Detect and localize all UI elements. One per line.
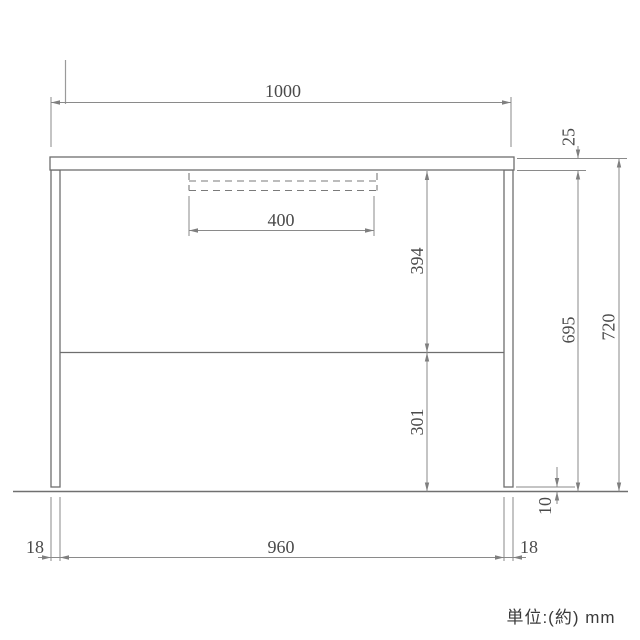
dim-apron-to-shelf-label: 394 xyxy=(407,248,427,275)
arrowhead-down xyxy=(555,478,559,487)
arrowhead-right xyxy=(495,555,504,559)
dim-bottom-widths: 18 960 18 xyxy=(26,497,538,561)
dim-top-thickness: 25 xyxy=(517,128,627,171)
dim-under-top-height: 695 xyxy=(559,171,581,492)
dim-inner-width-label: 960 xyxy=(268,537,295,557)
dim-top-width: 1000 xyxy=(51,81,511,147)
arrowhead-down xyxy=(576,150,580,159)
arrowhead-left xyxy=(189,228,198,232)
dim-overall-height-label: 720 xyxy=(599,314,619,341)
technical-drawing-canvas: 1000 400 25 695 720 394 xyxy=(0,0,640,640)
dim-drawer-width-label: 400 xyxy=(268,210,295,230)
arrowhead-up xyxy=(425,171,429,180)
dim-top-thickness-label: 25 xyxy=(559,128,579,146)
drawer-hidden-outline xyxy=(189,173,377,191)
dim-left-leg-label: 18 xyxy=(26,537,44,557)
dim-top-width-label: 1000 xyxy=(265,81,301,101)
desk-top xyxy=(50,157,514,170)
dim-drawer-width: 400 xyxy=(189,196,374,236)
right-leg xyxy=(504,170,513,487)
arrowhead-down xyxy=(576,483,580,492)
arrowhead-down xyxy=(425,483,429,492)
arrowhead-up xyxy=(576,171,580,180)
dim-shelf-to-floor: 301 xyxy=(407,353,429,492)
arrowhead-left xyxy=(60,555,69,559)
unit-note: 単位:(約) mm xyxy=(506,608,615,627)
dim-adjuster-height-label: 10 xyxy=(535,497,555,515)
arrowhead-down xyxy=(617,483,621,492)
arrowhead-down xyxy=(425,344,429,353)
dim-under-top-height-label: 695 xyxy=(559,317,579,344)
arrowhead-up xyxy=(425,353,429,362)
left-leg xyxy=(51,170,60,487)
dim-shelf-to-floor-label: 301 xyxy=(407,409,427,436)
arrowhead-up xyxy=(617,159,621,168)
arrowhead-right xyxy=(365,228,374,232)
dim-right-leg-label: 18 xyxy=(520,537,538,557)
dim-overall-height: 720 xyxy=(599,159,622,492)
arrowhead-left xyxy=(51,100,60,104)
arrowhead-up xyxy=(555,492,559,501)
desk-dimension-drawing: 1000 400 25 695 720 394 xyxy=(0,0,640,640)
arrowhead-right xyxy=(502,100,511,104)
dim-apron-to-shelf: 394 xyxy=(407,171,429,353)
